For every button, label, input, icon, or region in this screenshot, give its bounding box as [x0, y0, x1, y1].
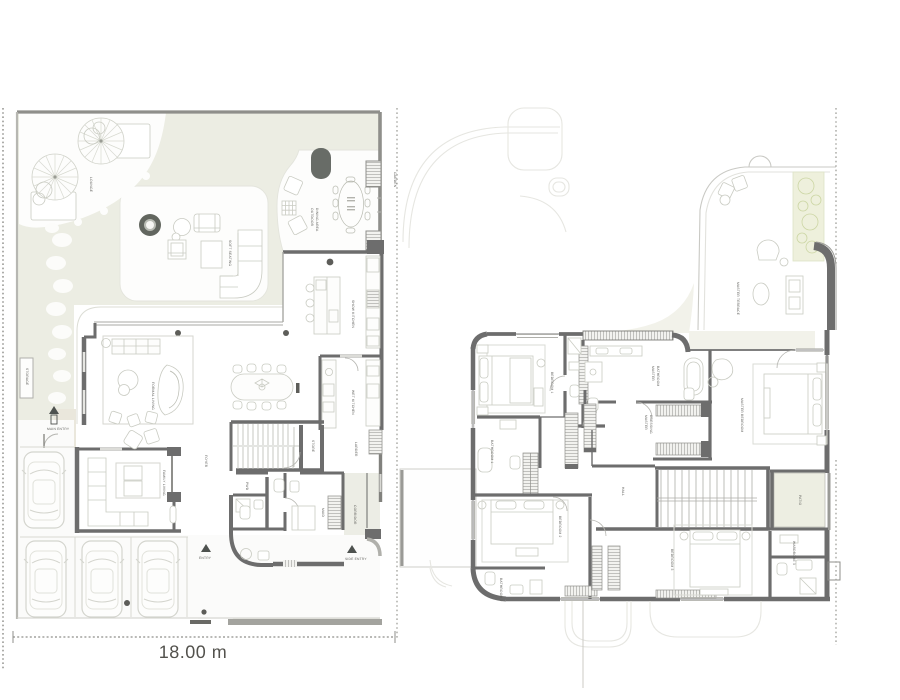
svg-text:ENTRY: ENTRY — [199, 556, 212, 560]
svg-text:SOFT SEATING: SOFT SEATING — [228, 240, 232, 267]
svg-text:CORRIDOR: CORRIDOR — [353, 505, 357, 525]
svg-text:BEDROOM 2: BEDROOM 2 — [558, 516, 562, 538]
svg-text:MASTER TERRACE: MASTER TERRACE — [736, 282, 740, 316]
svg-text:BEDROOM 1: BEDROOM 1 — [550, 372, 554, 394]
svg-text:WET KITCHEN: WET KITCHEN — [351, 390, 355, 415]
svg-text:LARDER: LARDER — [354, 442, 358, 457]
svg-text:MASTER: MASTER — [651, 366, 655, 381]
svg-text:HALL: HALL — [621, 487, 625, 496]
svg-text:BATHROOM 2: BATHROOM 2 — [499, 578, 503, 602]
svg-text:LOUNGE: LOUNGE — [89, 177, 93, 193]
svg-text:PATIO: PATIO — [798, 495, 802, 506]
svg-text:SHOW KITCHEN: SHOW KITCHEN — [351, 300, 355, 328]
svg-text:BEDROOM 3: BEDROOM 3 — [670, 549, 674, 571]
svg-text:MAIN ENTRY: MAIN ENTRY — [47, 427, 70, 431]
svg-text:MASTER BEDROOM: MASTER BEDROOM — [740, 398, 744, 433]
svg-text:BATHROOM 1: BATHROOM 1 — [490, 440, 494, 464]
svg-text:BATHROOM: BATHROOM — [656, 366, 660, 386]
svg-text:SIDE ENTRY: SIDE ENTRY — [345, 557, 367, 561]
svg-text:STORE: STORE — [311, 440, 315, 453]
svg-text:DRESSING: DRESSING — [649, 415, 653, 434]
svg-text:WARDROBE 3: WARDROBE 3 — [792, 541, 796, 565]
svg-text:FAMILY LIVING: FAMILY LIVING — [162, 470, 166, 496]
svg-text:STORAGE: STORAGE — [25, 368, 29, 386]
svg-text:18.00 m: 18.00 m — [159, 642, 228, 662]
svg-text:OUTDOOR: OUTDOOR — [310, 208, 314, 227]
svg-text:DINING AREA: DINING AREA — [315, 208, 319, 232]
svg-text:FORMAL LIVING: FORMAL LIVING — [151, 382, 155, 410]
svg-text:MASTER: MASTER — [644, 415, 648, 430]
svg-text:FOYER: FOYER — [204, 455, 208, 468]
svg-text:MAID: MAID — [321, 508, 325, 517]
svg-text:PWD: PWD — [245, 482, 249, 491]
svg-text:GARDEN: GARDEN — [393, 172, 397, 188]
